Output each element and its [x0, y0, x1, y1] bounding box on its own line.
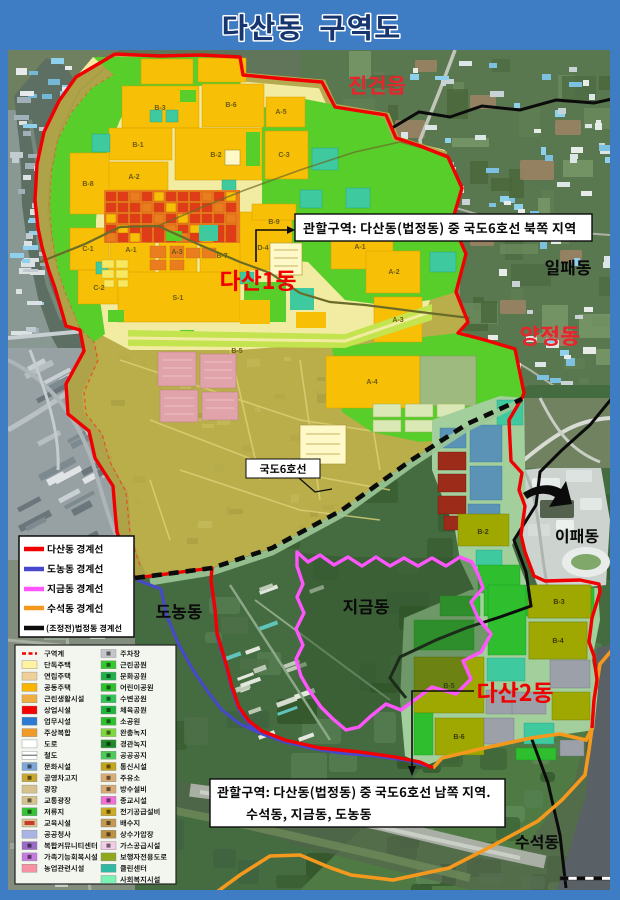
svg-text:B-6: B-6 — [225, 102, 236, 109]
svg-text:A-1: A-1 — [354, 244, 365, 251]
svg-text:A-5: A-5 — [275, 109, 286, 116]
svg-text:A-2: A-2 — [388, 269, 399, 276]
svg-text:B-4: B-4 — [552, 638, 563, 645]
svg-text:D-4: D-4 — [257, 245, 268, 252]
svg-text:B-6: B-6 — [453, 734, 464, 741]
svg-text:B-3: B-3 — [553, 599, 564, 606]
svg-text:A-2: A-2 — [128, 174, 139, 181]
svg-text:C-3: C-3 — [278, 152, 289, 159]
svg-text:B-2: B-2 — [210, 152, 221, 159]
svg-text:A-3: A-3 — [392, 317, 403, 324]
svg-text:B-9: B-9 — [268, 219, 279, 226]
svg-text:A-1: A-1 — [125, 247, 136, 254]
svg-text:B-7: B-7 — [216, 253, 227, 260]
svg-text:B-3: B-3 — [154, 105, 165, 112]
svg-text:A-4: A-4 — [366, 379, 377, 386]
svg-text:A-3: A-3 — [171, 249, 182, 256]
svg-text:S-1: S-1 — [173, 295, 184, 302]
svg-text:C-2: C-2 — [93, 285, 104, 292]
svg-text:B-8: B-8 — [82, 181, 93, 188]
svg-text:B-2: B-2 — [477, 529, 488, 536]
svg-text:B-5: B-5 — [231, 348, 242, 355]
svg-text:B-1: B-1 — [132, 142, 143, 149]
svg-text:C-1: C-1 — [82, 246, 93, 253]
